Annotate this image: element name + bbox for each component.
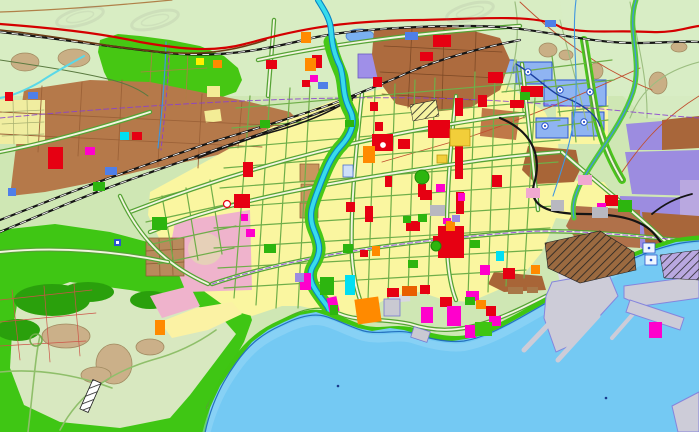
parcel-green	[520, 92, 530, 100]
parcel-commercial-red	[455, 146, 463, 179]
parcel-green	[264, 244, 276, 253]
parcel-dark-orange	[402, 286, 417, 296]
parcel-green	[320, 277, 334, 295]
parcel-green	[345, 120, 354, 127]
parcel-bright-green	[475, 322, 492, 336]
parcel-magenta	[85, 147, 95, 155]
shore-rock	[508, 287, 523, 294]
parcel-cyan	[496, 251, 504, 261]
parcel-magenta	[310, 75, 318, 82]
parcel-commercial-red	[346, 202, 355, 212]
parcel-commercial-red	[373, 77, 382, 87]
parcel-green	[618, 200, 632, 212]
campus-emblem-dot	[559, 89, 561, 91]
industrial-brown	[662, 116, 699, 150]
parcel-green	[330, 305, 338, 315]
campus-emblem-dot	[589, 91, 591, 93]
village-area	[559, 50, 573, 60]
shore-rock	[527, 287, 538, 293]
parcel-gray	[592, 207, 608, 218]
village-area	[539, 43, 557, 57]
logistics-purple	[626, 121, 662, 150]
parcel-commercial-red	[385, 176, 392, 187]
parcel-orange	[446, 221, 455, 231]
parcel-orange	[155, 320, 165, 335]
parcel-gray	[430, 205, 445, 216]
parcel-commercial-red	[266, 60, 277, 69]
parcel-cyan	[345, 275, 355, 295]
parcel-commercial-red	[375, 122, 383, 131]
parcel-magenta	[246, 229, 255, 237]
parcel-commercial-red	[428, 120, 450, 138]
parcel-commercial-red	[420, 285, 430, 294]
park-roundabout	[415, 170, 429, 184]
parcel-cyan	[120, 132, 129, 140]
parcel-green	[418, 214, 427, 222]
parcel-commercial-red	[243, 162, 253, 177]
parcel-commercial-red	[433, 35, 451, 47]
anchor-dot	[648, 247, 651, 250]
urban-block	[204, 109, 222, 123]
parcel-gold	[437, 155, 447, 163]
parcel-commercial-red	[486, 306, 496, 316]
parcel-magenta	[241, 214, 248, 221]
parcel-magenta	[649, 322, 662, 338]
parcel-orange	[372, 246, 380, 256]
parcel-blue	[8, 188, 16, 196]
parcel-commercial-red	[503, 268, 515, 279]
parcel-magenta	[458, 193, 465, 201]
parcel-commercial-red	[398, 139, 410, 149]
parcel-commercial-red	[440, 297, 452, 307]
parcel-blue	[105, 167, 117, 175]
urban-block	[207, 86, 220, 97]
parcel-green	[152, 217, 167, 230]
harbor-pier	[384, 299, 400, 316]
parcel-commercial-red	[478, 95, 487, 107]
parcel-magenta	[447, 306, 461, 326]
parcel-commercial-red	[5, 92, 13, 101]
parcel-commercial-red	[420, 190, 432, 200]
landmark-ring-icon	[380, 142, 387, 149]
parcel-orange	[476, 300, 486, 309]
parcel-pink	[578, 175, 592, 185]
parcel-magenta	[480, 265, 490, 275]
landmark-ring-icon	[224, 201, 231, 208]
park-roundabout	[431, 241, 441, 251]
parcel-blue	[545, 20, 556, 27]
parcel-gold	[450, 129, 470, 146]
parcel-orange	[354, 296, 381, 324]
parcel-commercial-red	[488, 72, 503, 83]
parcel-green	[408, 260, 418, 268]
parcel-orange	[305, 58, 316, 71]
park-sign-icon-inner	[116, 241, 119, 244]
parcel-pale-blue	[343, 165, 353, 177]
parcel-commercial-red	[48, 147, 63, 169]
parcel-magenta	[465, 325, 476, 338]
parcel-commercial-red	[510, 100, 524, 108]
campus-emblem-dot	[583, 121, 585, 123]
parcel-magenta	[421, 307, 433, 323]
parcel-green	[465, 297, 475, 305]
parcel-green	[260, 120, 270, 128]
village-area	[136, 339, 164, 355]
parcel-blue	[28, 92, 38, 99]
parcel-green	[470, 240, 480, 248]
village-area	[42, 324, 90, 348]
parcel-commercial-red	[492, 175, 502, 187]
parcel-orange	[531, 265, 540, 274]
parcel-commercial-red	[302, 80, 310, 87]
parcel-magenta	[436, 184, 445, 192]
village-area	[58, 49, 90, 67]
parcel-commercial-red	[420, 52, 433, 61]
parcel-yellow-bright	[196, 58, 204, 65]
village-area	[649, 72, 667, 94]
buoy-dot	[337, 385, 340, 388]
parcel-green	[343, 244, 353, 253]
village-area	[188, 233, 222, 265]
parcel-blue	[405, 32, 418, 40]
parcel-purple	[452, 215, 460, 222]
parcel-commercial-red	[605, 195, 618, 206]
forest-patch	[62, 282, 114, 302]
planning-map	[0, 0, 699, 432]
parcel-pink	[526, 188, 540, 198]
parcel-blue	[318, 82, 328, 89]
village-area	[671, 42, 687, 52]
parcel-orange	[301, 32, 311, 43]
anchor-dot	[650, 259, 653, 262]
parcel-green	[403, 216, 411, 223]
parcel-commercial-red	[370, 102, 378, 111]
development-zone-hatched	[660, 250, 699, 280]
parcel-gray	[551, 200, 564, 211]
parcel-commercial-red	[387, 288, 399, 297]
parcel-commercial-red	[360, 250, 368, 257]
parcel-green	[93, 182, 105, 191]
map-canvas	[0, 0, 699, 432]
parcel-commercial-red	[365, 206, 373, 222]
parcel-purple	[295, 273, 304, 282]
parcel-commercial-red	[455, 98, 463, 116]
buoy-dot	[605, 397, 608, 400]
parcel-orange	[213, 60, 222, 68]
campus-emblem-dot	[527, 71, 529, 73]
parcel-commercial-red	[132, 132, 142, 140]
parcel-commercial-red	[234, 194, 250, 208]
parcel-orange	[363, 146, 375, 163]
campus-emblem-dot	[544, 125, 546, 127]
